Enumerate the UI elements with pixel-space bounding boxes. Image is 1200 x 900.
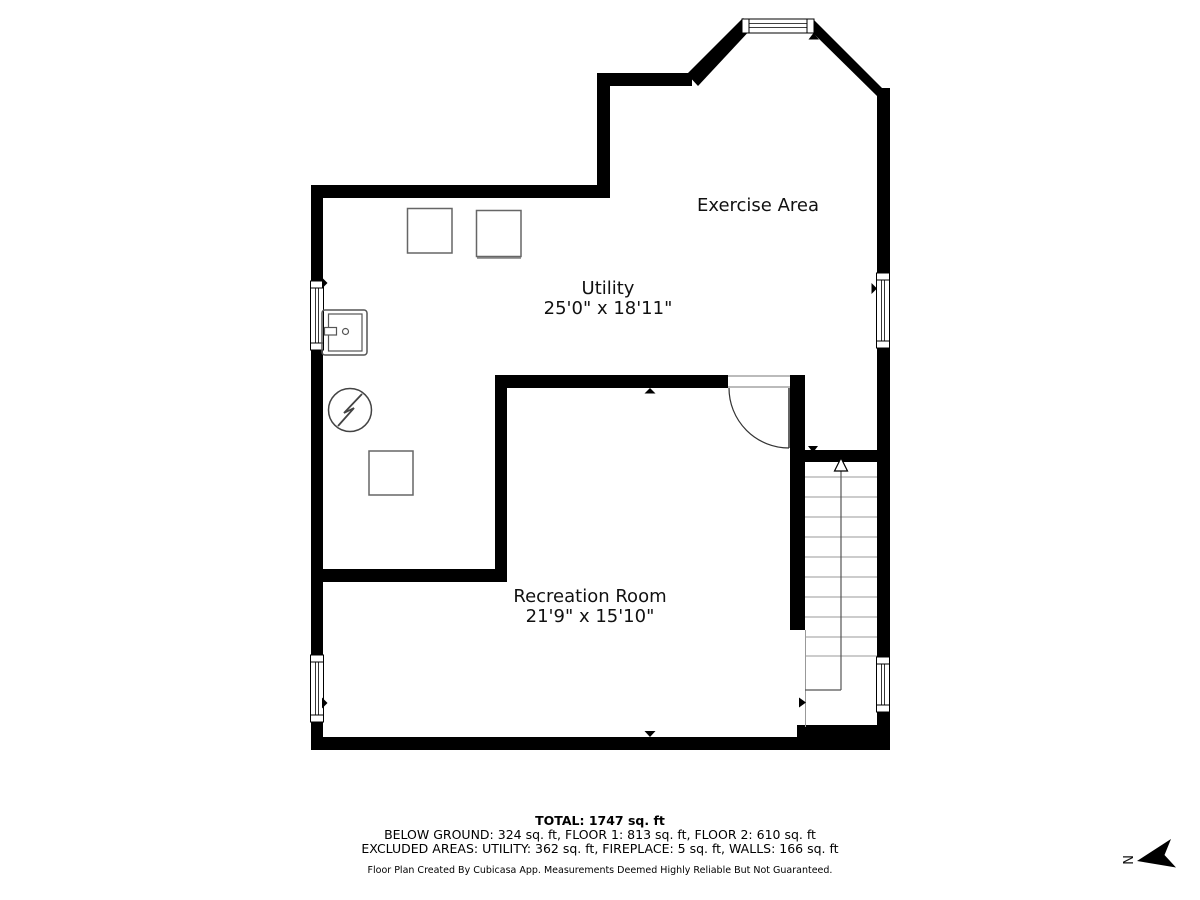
- wall-right: [877, 88, 890, 750]
- floorplan-page: Exercise Area Utility 25'0" x 18'11" Rec…: [0, 0, 1200, 900]
- room-label-recreation: Recreation Room: [513, 586, 666, 607]
- wall-recreation-top: [495, 375, 728, 388]
- wall-step-vertical: [597, 73, 610, 198]
- appliance-square-3: [369, 451, 413, 495]
- wall-recreation-left: [495, 375, 507, 582]
- utility-sink: [322, 310, 367, 355]
- lightning-bolt-icon: [338, 394, 362, 426]
- fixtures: [322, 209, 521, 496]
- marker-window-left-lower-icon: [322, 698, 328, 709]
- door-swing-arc: [729, 388, 789, 448]
- wall-utility-bottom: [311, 569, 507, 582]
- wall-stairs-left: [790, 375, 805, 630]
- appliance-square-1: [408, 209, 453, 254]
- window-right-upper: [877, 273, 890, 348]
- floorplan-drawing: Exercise Area Utility 25'0" x 18'11" Rec…: [0, 0, 1200, 900]
- area-summary: TOTAL: 1747 sq. ft BELOW GROUND: 324 sq.…: [0, 814, 1200, 876]
- marker-recreation-wall-icon: [645, 388, 656, 394]
- excluded-areas-text: EXCLUDED AREAS: UTILITY: 362 sq. ft, FIR…: [0, 842, 1200, 856]
- stair-bottom-marker-icon: [799, 698, 806, 708]
- wall-top-utility: [311, 185, 610, 198]
- total-area-text: TOTAL: 1747 sq. ft: [0, 814, 1200, 828]
- appliance-square-2: [477, 211, 522, 259]
- room-label-exercise-area: Exercise Area: [697, 195, 819, 216]
- door-recreation: [728, 374, 790, 448]
- wall-bottom-step: [797, 725, 890, 750]
- room-labels: Exercise Area Utility 25'0" x 18'11" Rec…: [513, 195, 819, 627]
- marker-bottom-wall-icon: [645, 731, 656, 737]
- room-dimensions-recreation: 21'9" x 15'10": [526, 606, 655, 627]
- marker-window-left-upper-icon: [322, 278, 328, 289]
- electrical-panel-symbol: [329, 389, 372, 432]
- wall-top-upper: [597, 73, 692, 86]
- window-top-bay: [742, 19, 814, 33]
- room-dimensions-utility: 25'0" x 18'11": [544, 298, 673, 319]
- window-right-lower: [877, 657, 890, 712]
- wall-diagonal-right: [813, 19, 890, 96]
- room-label-utility: Utility: [582, 278, 635, 299]
- disclaimer-text: Floor Plan Created By Cubicasa App. Meas…: [0, 865, 1200, 876]
- floor-breakdown-text: BELOW GROUND: 324 sq. ft, FLOOR 1: 813 s…: [0, 828, 1200, 842]
- staircase: [799, 446, 877, 727]
- window-left-lower: [311, 655, 324, 722]
